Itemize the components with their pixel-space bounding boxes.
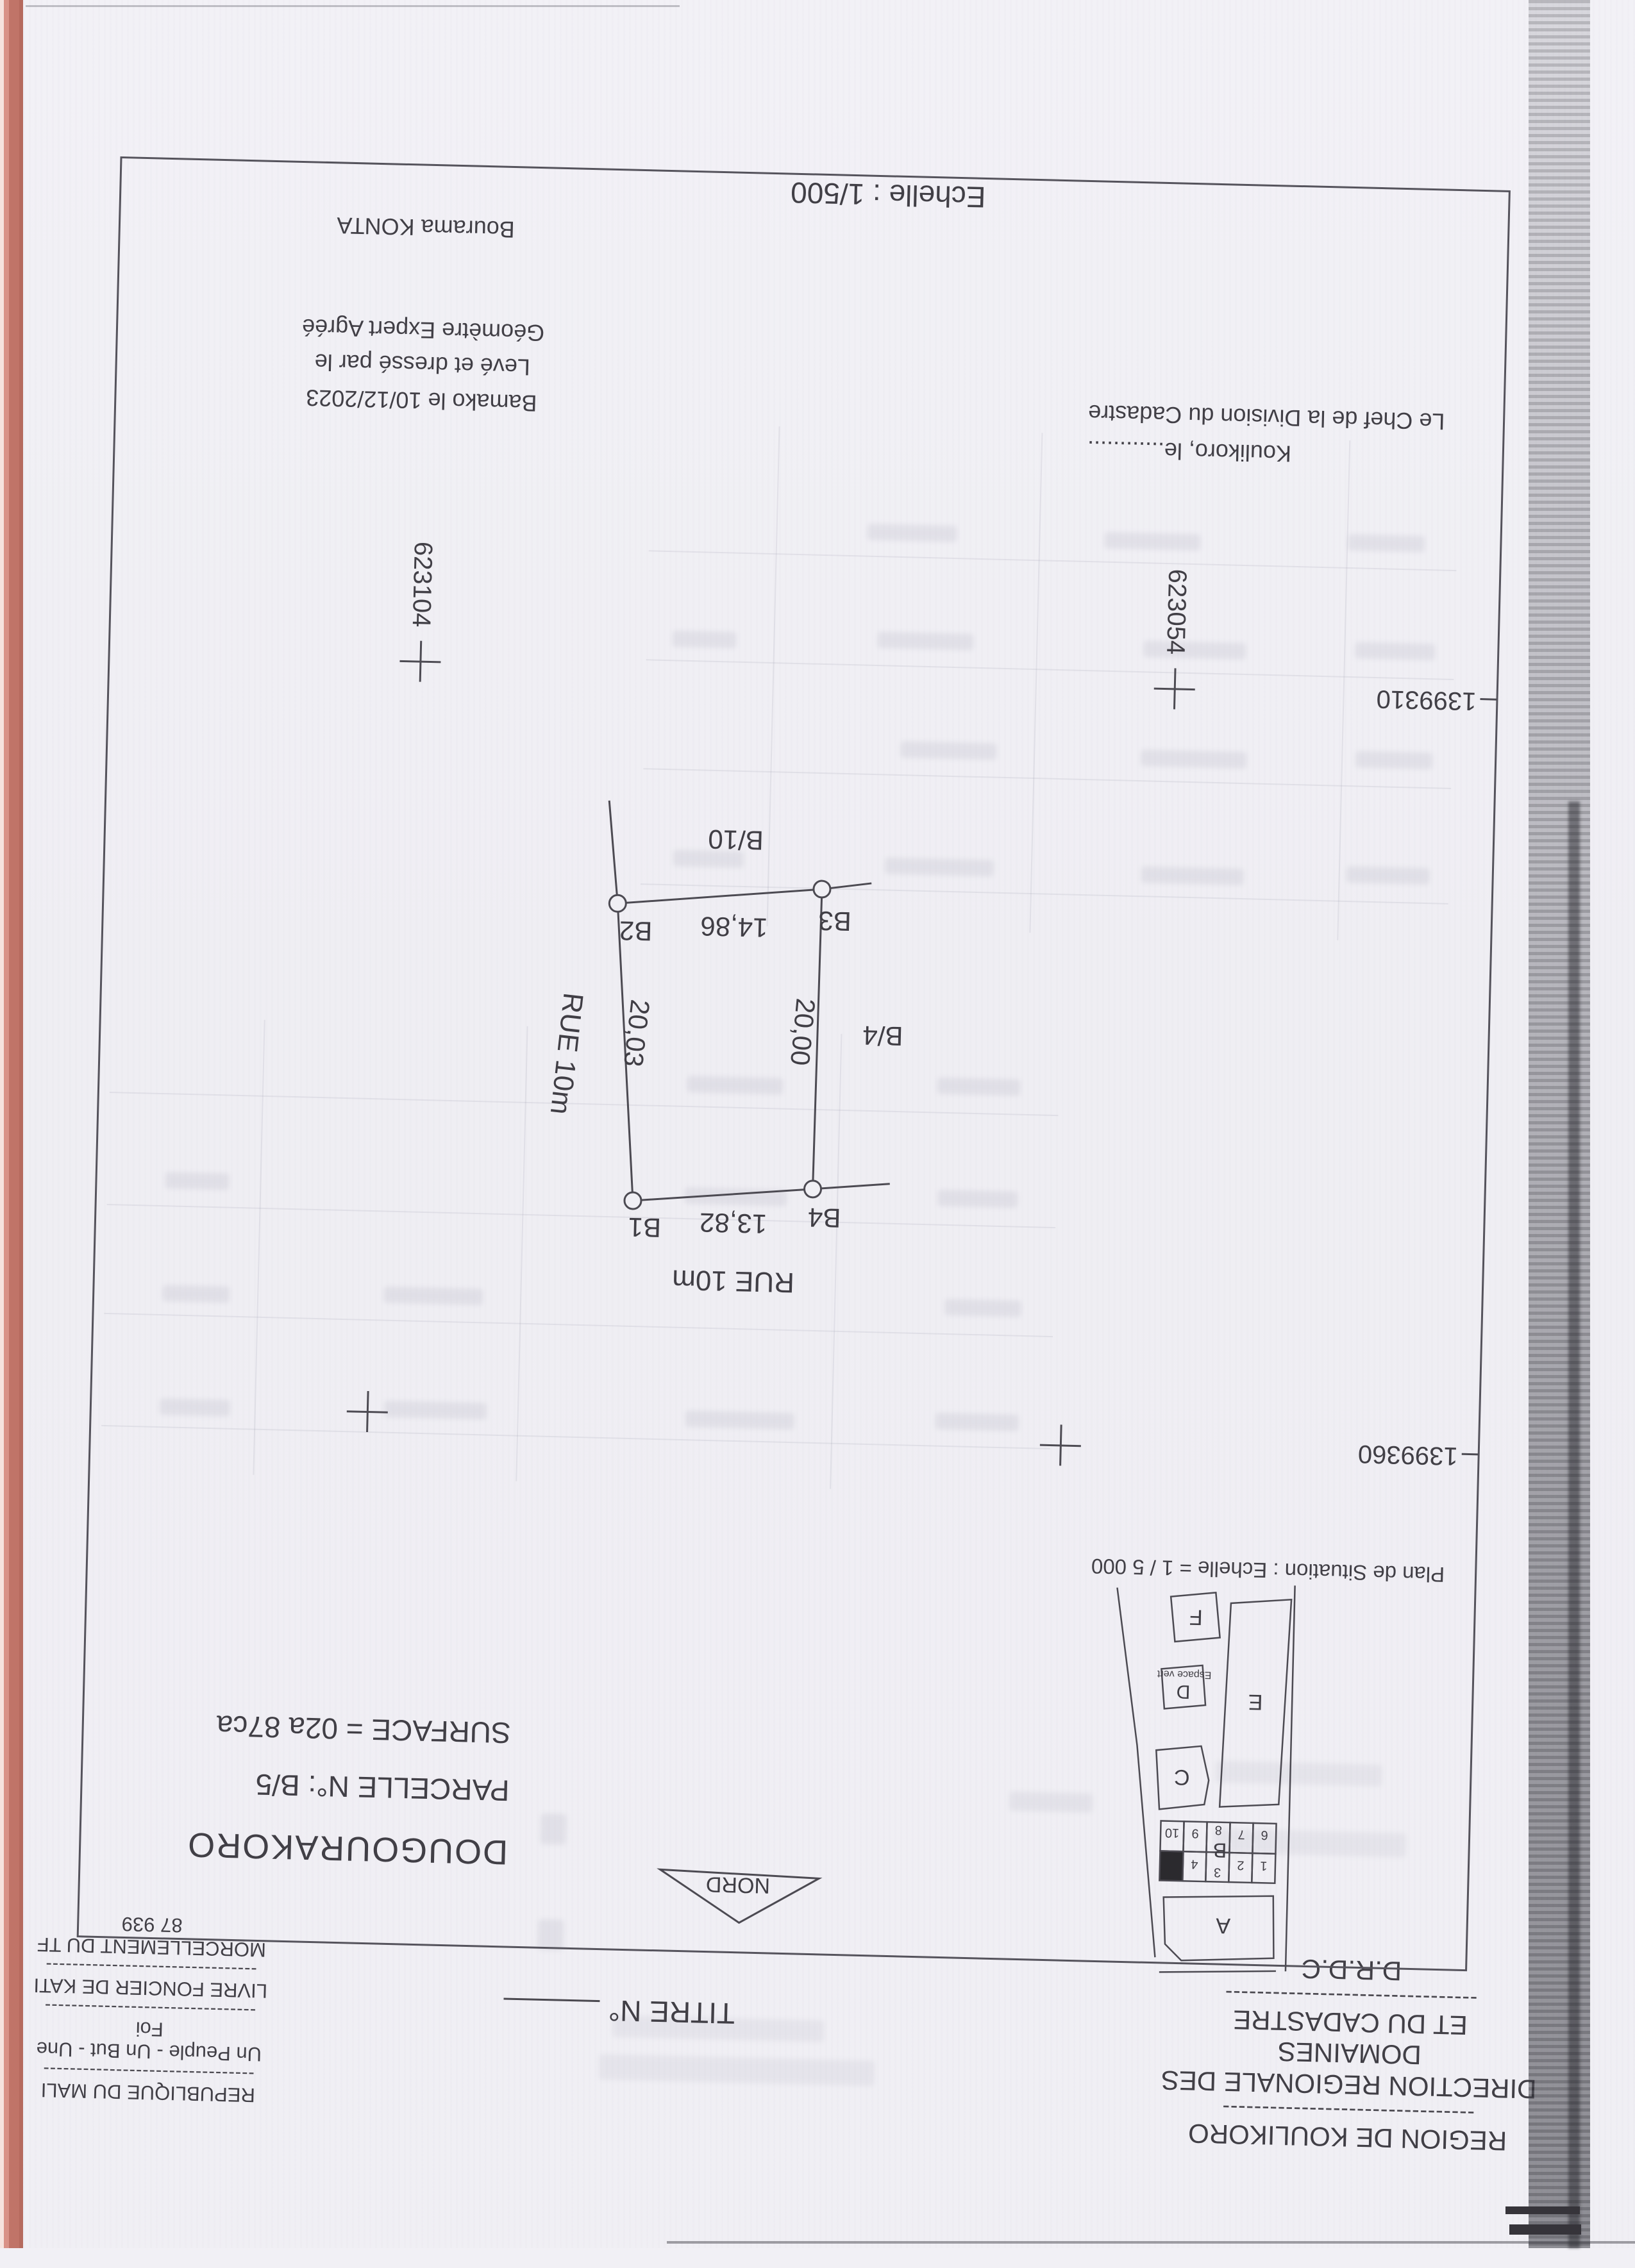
block-d-label: D: [1176, 1681, 1190, 1703]
north-label: NORD: [705, 1872, 770, 1897]
street-right-label: RUE 10m: [544, 991, 589, 1116]
surveyor-signature-block: Bamako le 10/12/2023 Levé et dressé par …: [255, 210, 592, 418]
vertex-b4-label: B4: [807, 1203, 841, 1233]
left-side-length: 20,00: [785, 997, 821, 1067]
parcel-sketch: RUE 10m B4 13,82 B1 B/4 20,00 20,03 RUE …: [533, 665, 973, 1335]
vertex-b1: [625, 1192, 642, 1210]
road-line-right: [1108, 1588, 1164, 1958]
parcel-identification: DOUGOURAKORO PARCELLE N°: B/5 SURFACE = …: [186, 1708, 511, 1872]
northing-label-1399310: 1399310: [1376, 684, 1477, 715]
easting-label-623104: 623104: [407, 529, 437, 639]
scanner-edge-dark-streak: [1568, 801, 1580, 2248]
scanner-bottom-shadow-line: [667, 2241, 1635, 2244]
lot-8-label: 8: [1214, 1822, 1222, 1837]
bottom-side-length: 14,86: [700, 911, 768, 943]
northing-tick: [1480, 698, 1497, 701]
northing-label-1399360: 1399360: [1357, 1439, 1458, 1471]
titre-number-line: [503, 1997, 599, 2024]
scanner-top-shadow-line: [26, 5, 680, 7]
parcel-surface: SURFACE = 02a 87ca: [189, 1708, 511, 1750]
titre-label: TITRE N°: [608, 1994, 735, 2030]
street-line-right-extension: [607, 801, 620, 903]
vertex-b3: [814, 881, 831, 898]
scanner-corner-mark: [1509, 2224, 1581, 2235]
lot-9-label: 9: [1191, 1826, 1199, 1840]
lot-4-label: 4: [1191, 1857, 1198, 1871]
lot-3-label: 3: [1214, 1865, 1221, 1879]
cadastral-plan-document: REGION DE KOULIKORO --------------------…: [0, 0, 1635, 2268]
surveyor-title: Géomètre Expert Agréé: [256, 312, 591, 347]
drawn-by-line: Levé et dressé par le: [255, 347, 589, 382]
easting-label-623054: 623054: [1161, 557, 1192, 667]
north-arrow: NORD: [641, 1856, 828, 1931]
grid-cross: [1153, 668, 1196, 710]
block-f-label: F: [1189, 1605, 1203, 1629]
road-line-top: [1159, 1968, 1276, 1974]
vertex-b1-label: B1: [628, 1212, 662, 1243]
block-a-label: A: [1216, 1914, 1231, 1939]
locality-name: DOUGOURAKORO: [186, 1824, 508, 1872]
grid-cross: [399, 640, 442, 683]
scanner-corner-mark: [1505, 2206, 1580, 2214]
lot-5-subject-parcel: [1159, 1851, 1183, 1881]
direction-title: DIRECTION REGIONALE DES DOMAINES: [1137, 2033, 1561, 2105]
lot-7-label: 7: [1237, 1827, 1245, 1841]
street-line-top-extension: [813, 1182, 890, 1191]
neighbor-bottom-label: B/10: [708, 824, 764, 856]
vertex-b2-label: B2: [619, 915, 653, 946]
lot-10-label: 10: [1165, 1826, 1180, 1840]
lot-6-label: 6: [1261, 1828, 1268, 1842]
block-e-label: E: [1248, 1690, 1263, 1715]
top-side-length: 13,82: [700, 1208, 767, 1240]
street-top-label: RUE 10m: [672, 1264, 795, 1299]
scanner-edge-shadow-band: [1529, 0, 1590, 2248]
block-b-label: B: [1212, 1839, 1227, 1862]
northing-tick: [1462, 1453, 1479, 1456]
scanner-edge-pink-strip: [0, 0, 23, 2248]
vertex-b3-label: B3: [818, 906, 852, 937]
grid-cross: [1039, 1424, 1082, 1467]
lot-2-label: 2: [1237, 1858, 1245, 1872]
vertex-b4: [804, 1181, 821, 1198]
vertex-b2: [609, 895, 626, 912]
titre-number-row: TITRE N°: [503, 1990, 735, 2031]
block-c-label: C: [1174, 1765, 1190, 1790]
grid-cross: [346, 1390, 389, 1433]
espace-vert-label: Espace vert: [1157, 1668, 1211, 1680]
cadastre-signature-block: Koulikoro, le............ Le Chef de la …: [1087, 399, 1524, 473]
motto: Un Peuple - Un But - Une Foi: [21, 2014, 278, 2066]
lot-1-label: 1: [1260, 1858, 1268, 1872]
scale-note: Echelle : 1/500: [790, 176, 986, 215]
neighbor-left-label: B/4: [862, 1021, 903, 1052]
parcel-number: PARCELLE N°: B/5: [188, 1765, 510, 1808]
situation-map: A B 1 2 3 4 6 7 8 9 10 C E D Espace vert…: [1089, 1569, 1304, 1985]
road-line-left: [1286, 1585, 1295, 1971]
